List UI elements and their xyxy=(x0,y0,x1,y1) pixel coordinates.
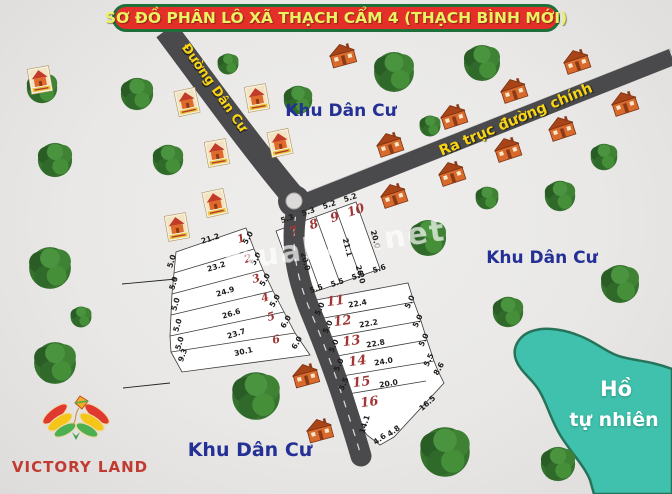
plot-number: 13 xyxy=(342,333,362,350)
lake-label-line1: Hồ xyxy=(600,377,632,401)
tree-icon xyxy=(232,372,280,420)
map-title: SƠ ĐỒ PHÂN LÔ XÃ THẠCH CẨM 4 (THẠCH BÌNH… xyxy=(105,9,567,27)
plot-number: 15 xyxy=(352,374,372,391)
tree-icon xyxy=(601,265,639,303)
house-icon xyxy=(438,102,469,130)
house-icon xyxy=(202,188,229,218)
plot-number: 12 xyxy=(333,313,353,330)
victory-land-logo xyxy=(40,396,112,440)
tree-icon xyxy=(121,78,153,110)
house-icon xyxy=(561,47,592,75)
house-icon xyxy=(609,89,640,117)
plot-number: 16 xyxy=(360,394,380,411)
tree-icon xyxy=(420,116,441,137)
leader-line xyxy=(123,383,170,388)
house-icon xyxy=(290,361,321,388)
plot-number: 11 xyxy=(326,293,346,310)
area-label-top: Khu Dân Cư xyxy=(285,101,396,121)
house-icon xyxy=(492,135,523,163)
lake-label-line2: tự nhiên xyxy=(569,409,658,431)
area-label-right: Khu Dân Cư xyxy=(486,248,597,268)
tree-icon xyxy=(38,143,72,177)
tree-icon xyxy=(218,54,239,75)
tree-icon xyxy=(476,187,499,210)
house-icon xyxy=(244,83,270,112)
tree-icon xyxy=(545,181,575,211)
house-icon xyxy=(546,114,577,142)
tree-icon xyxy=(71,307,92,328)
house-icon xyxy=(327,41,358,68)
tree-icon xyxy=(493,297,523,327)
house-icon xyxy=(436,159,467,187)
tree-icon xyxy=(374,52,414,92)
house-icon xyxy=(164,212,190,241)
house-icon xyxy=(174,87,201,117)
house-icon xyxy=(378,181,409,209)
tree-icon xyxy=(464,45,500,81)
plot-number: 14 xyxy=(348,353,368,370)
tree-icon xyxy=(29,247,71,289)
tree-icon xyxy=(420,427,469,476)
house-icon xyxy=(204,138,230,167)
house-icon xyxy=(27,65,53,94)
tree-icon xyxy=(153,145,183,175)
tree-icon xyxy=(541,447,575,481)
plot-map: 21.223.224.926.623.730.15.05.05.05.05.09… xyxy=(0,0,672,494)
house-icon xyxy=(498,76,529,104)
tree-icon xyxy=(591,144,618,171)
brand-name: VICTORY LAND xyxy=(12,458,148,476)
house-icon xyxy=(374,130,405,158)
area-label-bottom: Khu Dân Cư xyxy=(188,439,313,461)
title-banner: SƠ ĐỒ PHÂN LÔ XÃ THẠCH CẨM 4 (THẠCH BÌNH… xyxy=(112,4,560,32)
tree-icon xyxy=(34,342,76,384)
